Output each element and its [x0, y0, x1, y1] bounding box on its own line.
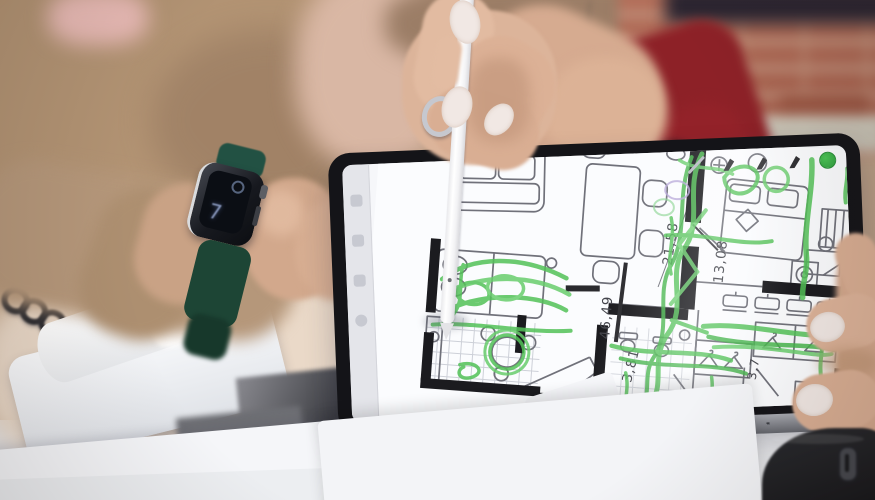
sidebar-tool-icon[interactable] — [353, 274, 365, 286]
computer-mouse — [762, 428, 875, 500]
mouse-scroll-wheel — [838, 446, 858, 482]
sidebar-tool-icon[interactable] — [350, 194, 362, 206]
dimension-area-total: 46,49 — [597, 295, 616, 340]
watch-case: 7 — [184, 159, 267, 249]
sidebar-tool-icon[interactable] — [352, 234, 364, 246]
watch-clock-digit: 7 — [206, 199, 224, 225]
ruler-icon[interactable] — [687, 156, 706, 175]
pink-shirt — [48, 0, 148, 45]
app-tool-sidebar — [342, 164, 379, 423]
pen-icon[interactable] — [786, 152, 805, 171]
watch-complication-icon — [230, 179, 246, 195]
sidebar-tool-icon[interactable] — [355, 314, 367, 326]
pen-icon[interactable] — [753, 153, 772, 172]
photo-scene: 7 — [0, 0, 875, 500]
active-color-swatch-green[interactable] — [819, 151, 837, 169]
pen-icon[interactable] — [720, 154, 739, 173]
watch-screen: 7 — [197, 169, 254, 236]
